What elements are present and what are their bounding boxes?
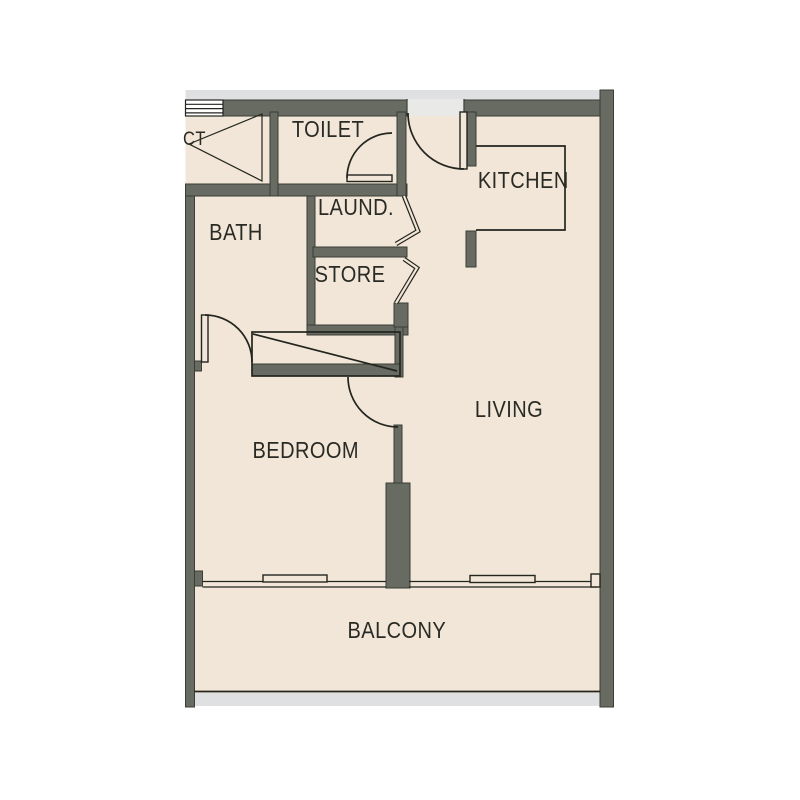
top-wall-left — [223, 100, 407, 116]
top-wall-right — [464, 100, 614, 116]
bath-door-leaf — [202, 315, 209, 362]
room-label-laundry: LAUND. — [317, 196, 395, 219]
room-label-toilet: TOILET — [289, 118, 367, 141]
living-sliding-pane — [470, 576, 535, 583]
bedroom-door-side-wall — [394, 425, 402, 483]
room-label-bath: BATH — [197, 221, 275, 244]
duct-right-wall — [270, 112, 278, 196]
window-right-notch — [591, 574, 600, 587]
room-label-store: STORE — [311, 263, 389, 286]
room-label-duct: CT — [183, 130, 218, 149]
entry-doorway-opening — [407, 99, 464, 116]
toilet-right-wall — [397, 112, 406, 196]
floor-plan: TOILET KITCHEN LAUND. BATH STORE LIVING … — [0, 0, 800, 800]
bedroom-sliding-pane — [263, 575, 327, 582]
left-wall — [186, 184, 195, 707]
right-wall — [600, 90, 614, 707]
floor-plan-drawing — [0, 0, 800, 800]
top-slab-strip — [186, 90, 614, 100]
store-door-jamb — [394, 303, 408, 327]
bath-door-jamb — [195, 361, 202, 371]
store-bottom-wall — [307, 325, 408, 335]
toilet-door-leaf — [347, 175, 392, 182]
room-label-living: LIVING — [470, 398, 548, 421]
window-end-stub — [195, 571, 203, 586]
room-label-bedroom: BEDROOM — [253, 439, 340, 462]
entry-door-leaf — [460, 112, 467, 169]
laundry-store-divider-wall — [313, 247, 407, 257]
balcony-edge-slab — [195, 693, 601, 706]
room-label-balcony: BALCONY — [348, 619, 435, 642]
room-label-kitchen: KITCHEN — [478, 169, 556, 192]
living-bedroom-pillar — [386, 483, 410, 588]
kitchen-stub-bottom — [466, 231, 476, 267]
